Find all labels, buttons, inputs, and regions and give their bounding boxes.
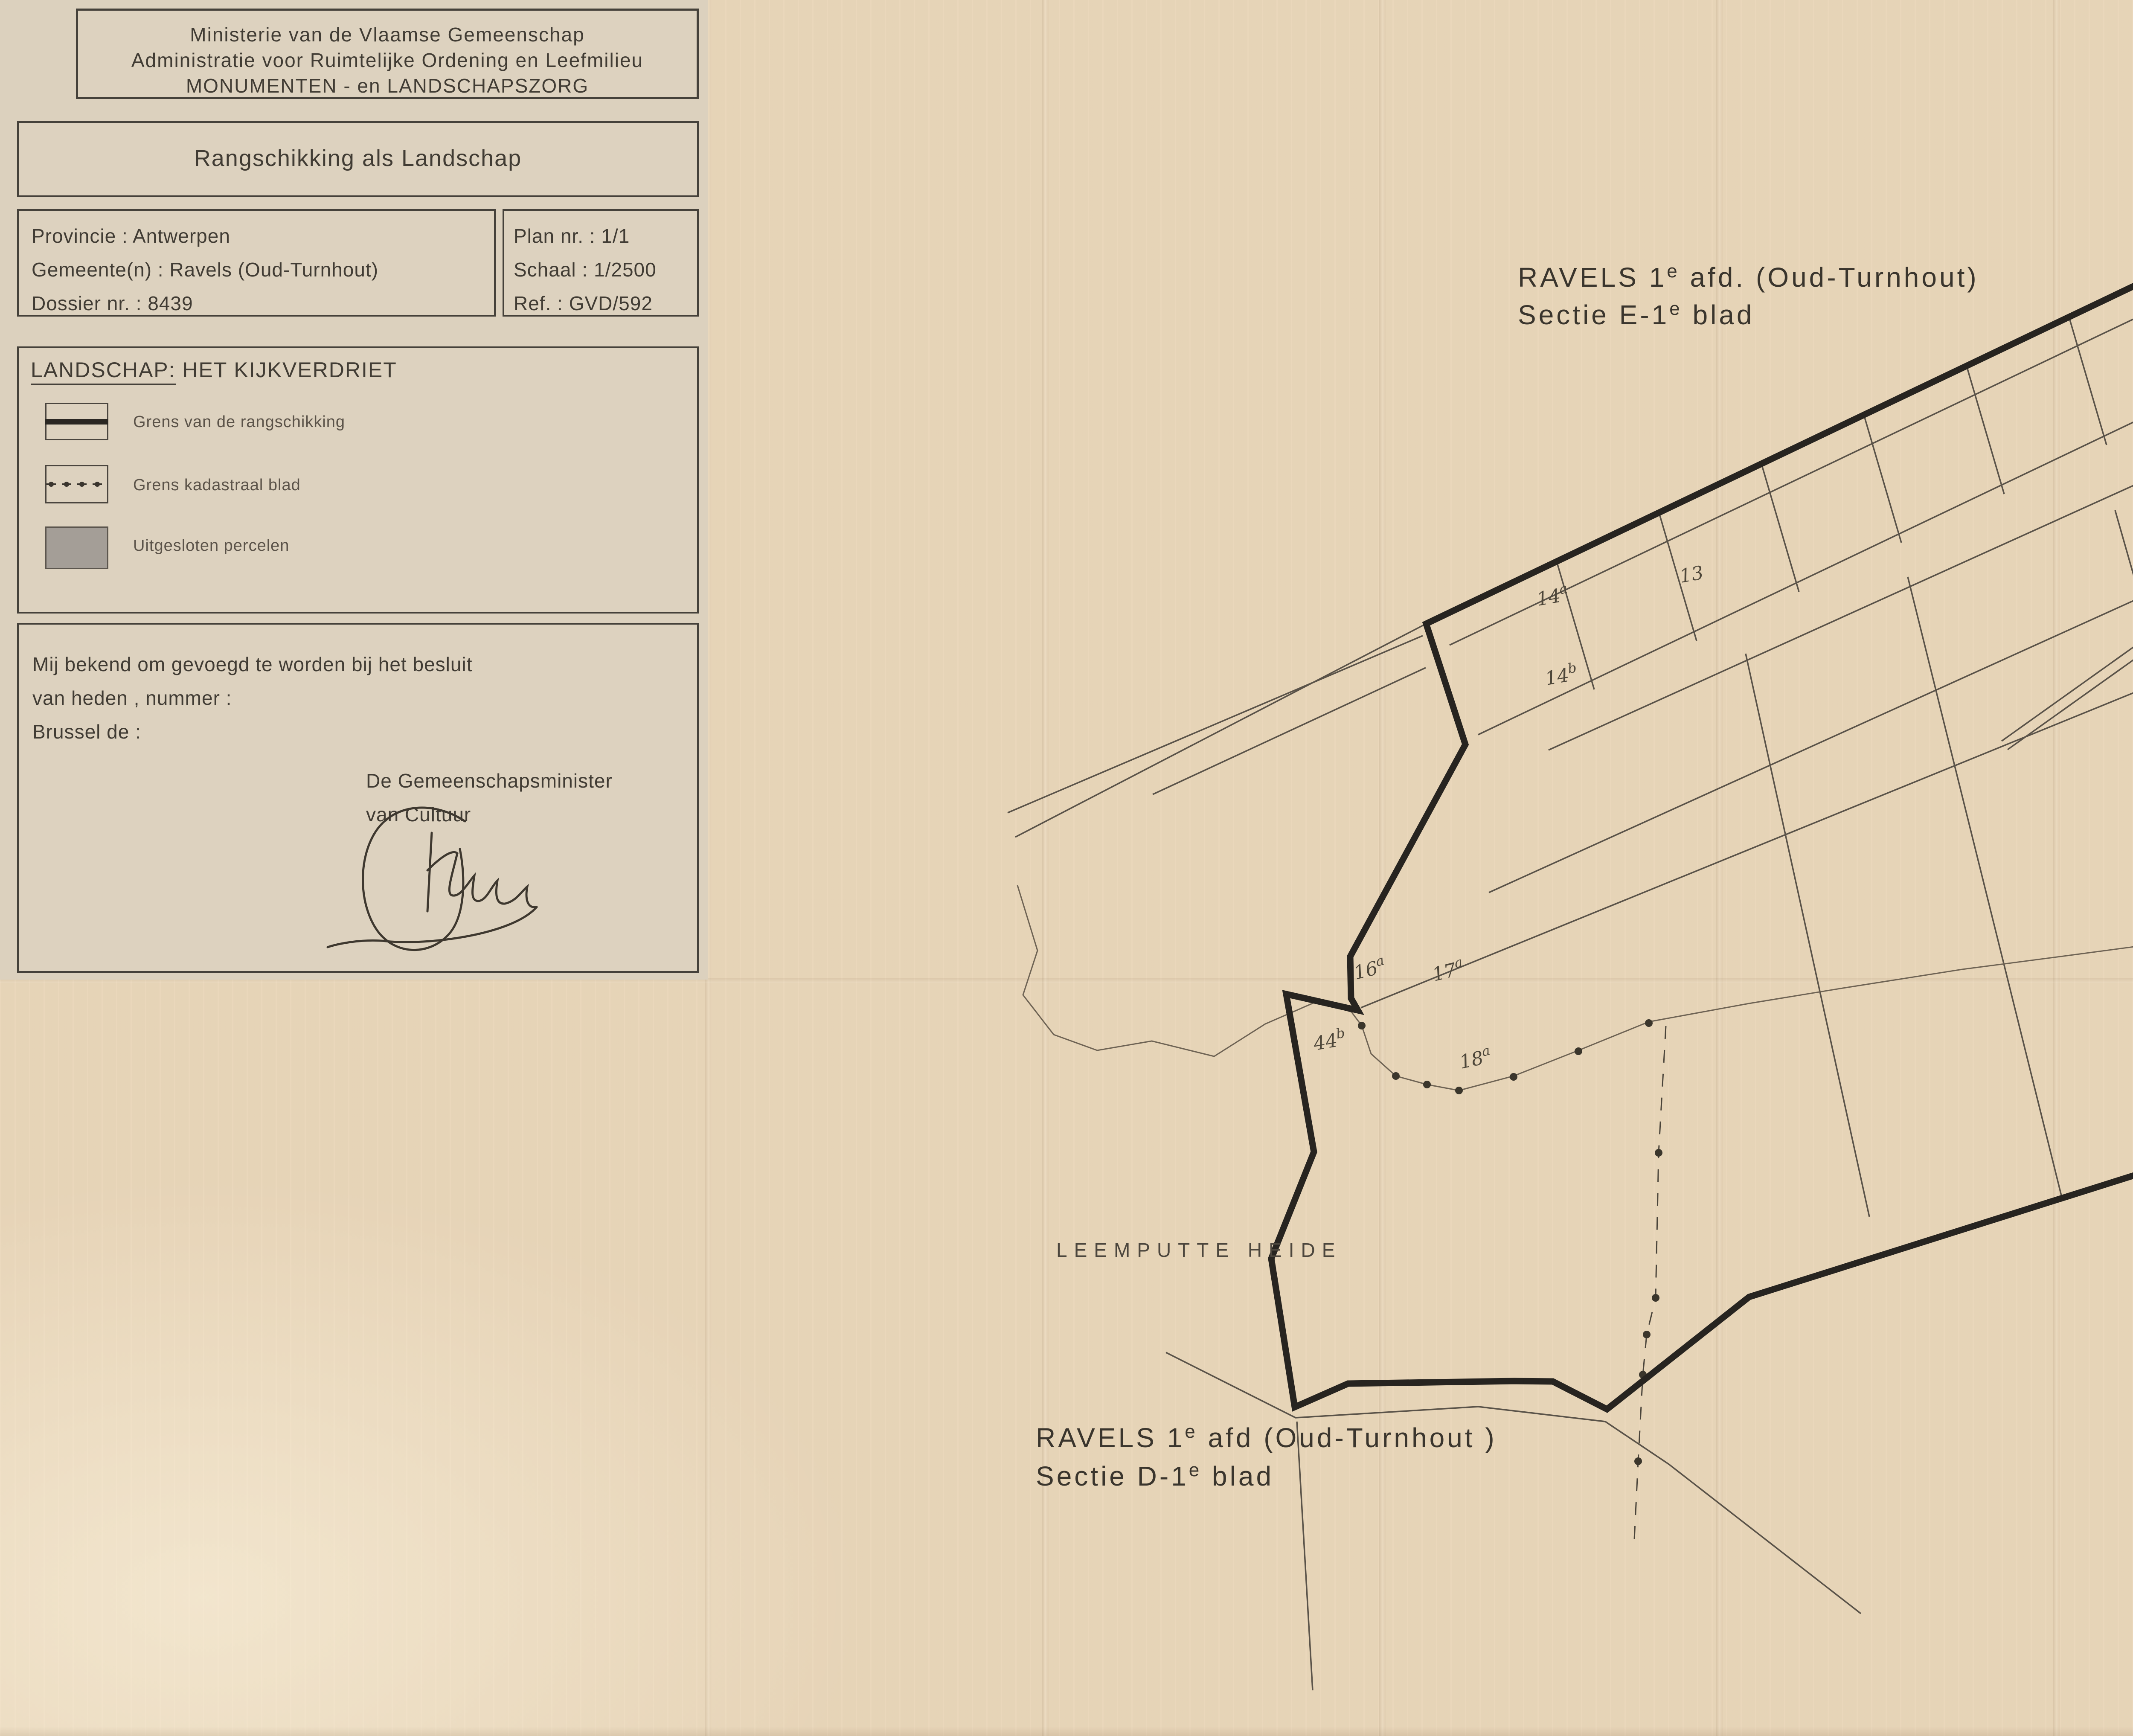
ministry-header-box: Ministerie van de Vlaamse Gemeenschap Ad…: [76, 9, 699, 99]
legend-title-rest: HET KIJKVERDRIET: [176, 358, 397, 382]
title-panel: Ministerie van de Vlaamse Gemeenschap Ad…: [0, 0, 708, 980]
cadastral-thin-lines: [1008, 35, 2133, 1690]
plan-number-field: Plan nr. : 1/1: [514, 219, 697, 253]
stream: [1017, 803, 2133, 1090]
boundary-dots: [1358, 1019, 1662, 1465]
ministry-line2: Administratie voor Ruimtelijke Ordening …: [78, 47, 697, 73]
legend-item-label: Uitgesloten percelen: [133, 537, 289, 555]
document-title-box: Rangschikking als Landschap: [17, 121, 699, 197]
signatory-line1: De Gemeenschapsminister: [366, 764, 697, 798]
paper-fold: [1379, 0, 1386, 1736]
section-e-label: RAVELS 1e afd. (Oud-Turnhout): [1518, 261, 1979, 293]
province-field: Provincie : Antwerpen: [32, 219, 494, 253]
section-d-label: RAVELS 1e afd (Oud-Turnhout ): [1036, 1421, 1497, 1453]
reference-field: Ref. : GVD/592: [514, 287, 697, 320]
legend-title: LANDSCHAP: HET KIJKVERDRIET: [31, 358, 397, 382]
province-info-box: Provincie : Antwerpen Gemeente(n) : Rave…: [17, 209, 496, 317]
legend-box: LANDSCHAP: HET KIJKVERDRIET Grens van de…: [17, 346, 699, 614]
parcel-label: 13: [1678, 562, 1705, 587]
paper-fold: [1716, 0, 1723, 1736]
cadastral-sheet-boundary: [1358, 1019, 1666, 1539]
legend-item-label: Grens kadastraal blad: [133, 476, 301, 494]
paper-fold: [1042, 0, 1049, 1736]
parcel-label: 14b: [1543, 659, 1580, 689]
rangschikking-boundary: [1271, 179, 2133, 1409]
statement-line1: Mij bekend om gevoegd te worden bij het …: [32, 648, 697, 681]
statement-line3: Brussel de :: [32, 715, 697, 749]
legend-symbol-boundary: [45, 403, 108, 440]
signatory-block: De Gemeenschapsminister van Cultuur: [366, 764, 697, 832]
ministry-line1: Ministerie van de Vlaamse Gemeenschap: [78, 22, 697, 47]
dash-dot-swatch: [46, 466, 107, 502]
paper-fold: [2053, 0, 2060, 1736]
legend-symbol-excluded: [45, 526, 108, 569]
dossier-field: Dossier nr. : 8439: [32, 287, 494, 320]
section-d-blad: Sectie D-1e blad: [1036, 1460, 1274, 1492]
parcel-label: 14a: [1534, 580, 1570, 611]
signatory-line2: van Cultuur: [366, 798, 697, 832]
page-title: Rangschikking als Landschap: [19, 145, 697, 172]
parcel-label: 18a: [1457, 1042, 1494, 1073]
plan-info-box: Plan nr. : 1/1 Schaal : 1/2500 Ref. : GV…: [503, 209, 699, 317]
statement-line2: van heden , nummer :: [32, 681, 697, 715]
thick-line-swatch: [45, 419, 108, 425]
ministry-line3: MONUMENTEN - en LANDSCHAPSZORG: [78, 73, 697, 99]
scale-field: Schaal : 1/2500: [514, 253, 697, 287]
place-label-leemputte-heide: LEEMPUTTE HEIDE: [1056, 1239, 1342, 1261]
municipality-field: Gemeente(n) : Ravels (Oud-Turnhout): [32, 253, 494, 287]
scanned-map-sheet: Ministerie van de Vlaamse Gemeenschap Ad…: [0, 0, 2133, 1736]
legend-item-label: Grens van de rangschikking: [133, 413, 345, 431]
legend-symbol-cadastral: [45, 465, 108, 503]
parcel-label: 44b: [1311, 1024, 1348, 1055]
legend-title-underlined: LANDSCHAP:: [31, 358, 176, 385]
statement-box: Mij bekend om gevoegd te worden bij het …: [17, 623, 699, 973]
sheet-bottom-shadow: [0, 1727, 2133, 1736]
